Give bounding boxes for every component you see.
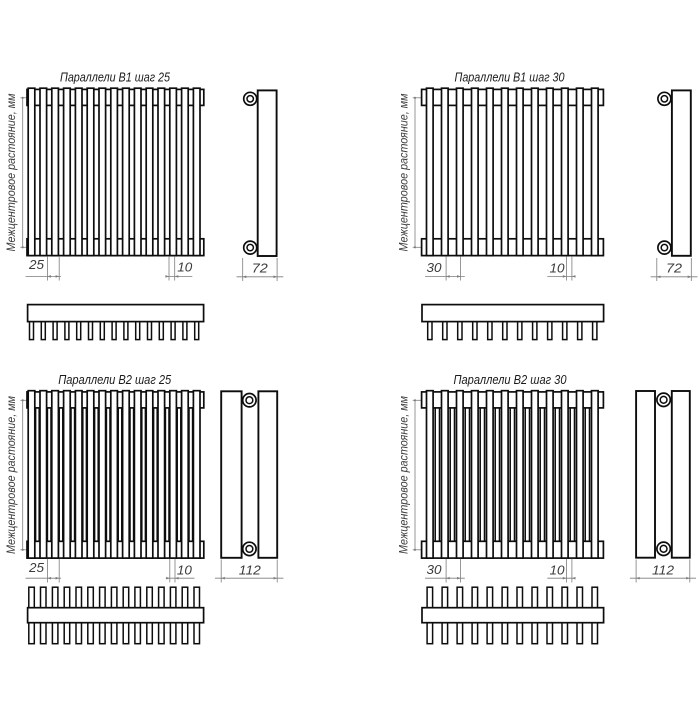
svg-text:Параллели В2 шаг 25: Параллели В2 шаг 25	[58, 372, 172, 387]
svg-text:10: 10	[177, 563, 193, 578]
svg-text:Межцентровое растояние, мм: Межцентровое растояние, мм	[396, 396, 410, 554]
svg-text:Параллели В1 шаг 30: Параллели В1 шаг 30	[455, 70, 566, 85]
svg-text:10: 10	[550, 261, 566, 276]
svg-text:10: 10	[177, 260, 193, 275]
svg-text:Параллели В1 шаг 25: Параллели В1 шаг 25	[60, 70, 171, 85]
svg-text:25: 25	[28, 257, 45, 272]
svg-text:72: 72	[666, 261, 683, 276]
svg-text:30: 30	[427, 260, 443, 275]
svg-text:30: 30	[427, 562, 443, 577]
svg-text:Параллели В2 шаг 30: Параллели В2 шаг 30	[454, 372, 568, 387]
svg-text:Межцентровое растояние, мм: Межцентровое растояние, мм	[396, 94, 410, 252]
svg-text:10: 10	[550, 563, 566, 578]
svg-text:25: 25	[28, 560, 45, 575]
svg-text:72: 72	[252, 261, 269, 276]
svg-text:112: 112	[239, 563, 262, 578]
svg-text:Межцентровое растояние, мм: Межцентровое растояние, мм	[4, 94, 18, 252]
svg-text:Межцентровое растояние, мм: Межцентровое растояние, мм	[4, 396, 18, 554]
svg-text:112: 112	[652, 563, 675, 578]
